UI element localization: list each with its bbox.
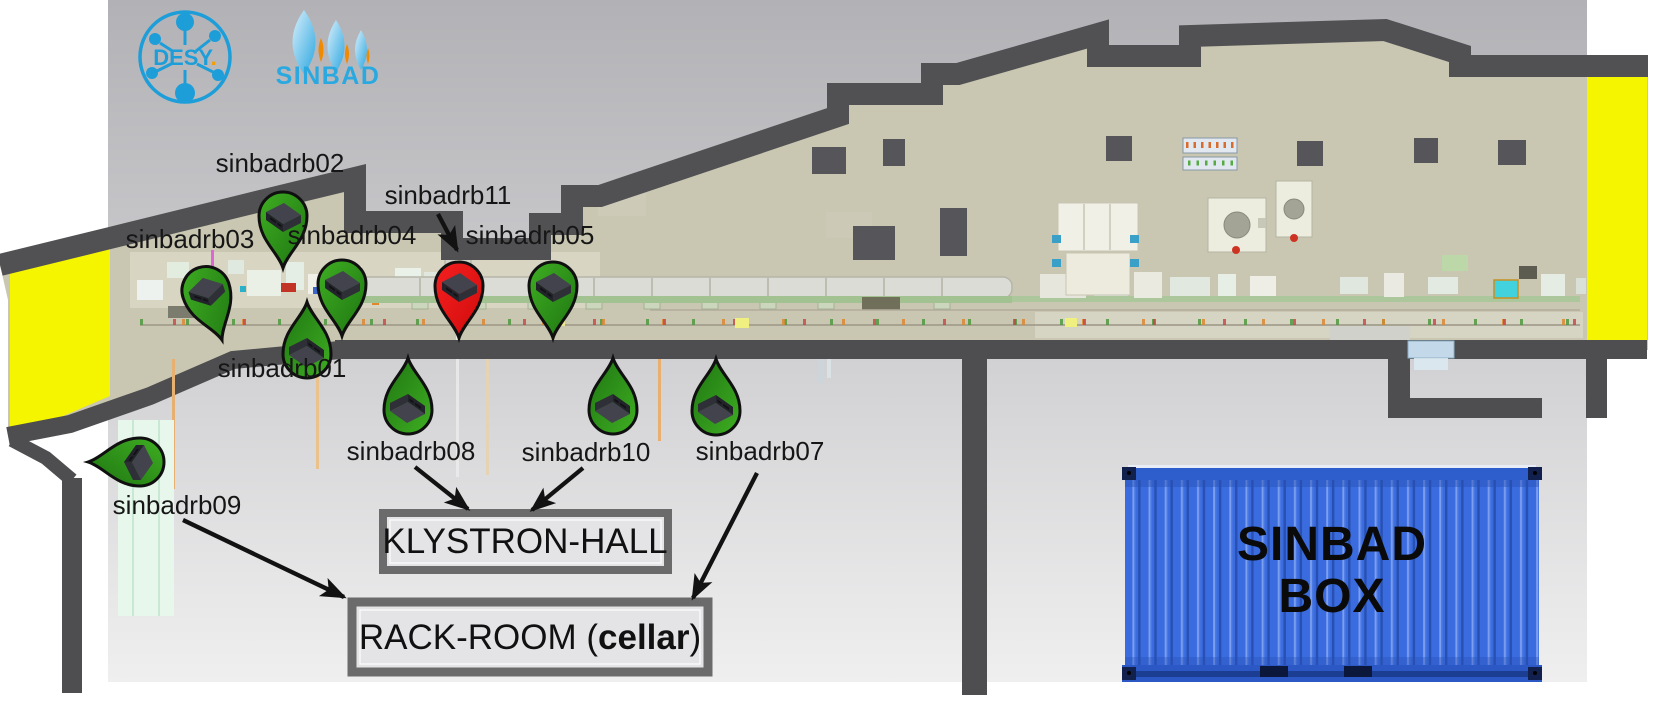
marker-label-sinbadrb04: sinbadrb04 — [288, 220, 417, 250]
marker-label-sinbadrb03: sinbadrb03 — [126, 224, 255, 254]
desy-logo-text: DESY — [153, 45, 213, 70]
rack-room-box: RACK-ROOM (cellar) — [352, 602, 708, 672]
marker-label-sinbadrb07: sinbadrb07 — [696, 436, 825, 466]
door — [1408, 341, 1454, 358]
klystron-hall-box: KLYSTRON-HALL — [382, 513, 668, 570]
sinbad-box-label-line2: BOX — [1278, 570, 1385, 623]
device-pin-sinbadrb09[interactable] — [88, 438, 164, 486]
marker-label-sinbadrb01: sinbadrb01 — [218, 353, 347, 383]
marker-label-sinbadrb08: sinbadrb08 — [347, 436, 476, 466]
marker-label-sinbadrb09: sinbadrb09 — [113, 490, 242, 520]
klystron-hall-label: KLYSTRON-HALL — [382, 522, 667, 561]
facility-map: KLYSTRON-HALL RACK-ROOM (cellar) SINBAD … — [0, 0, 1661, 723]
yellow-zone-right — [1587, 75, 1647, 340]
rack-room-label: RACK-ROOM (cellar) — [359, 618, 701, 657]
sinbad-box-container: SINBAD BOX — [1122, 465, 1542, 682]
sinbad-box-label-line1: SINBAD — [1237, 518, 1427, 571]
desy-logo: DESY. — [140, 12, 230, 103]
marker-label-sinbadrb10: sinbadrb10 — [522, 437, 651, 467]
marker-label-sinbadrb02: sinbadrb02 — [216, 148, 345, 178]
marker-label-sinbadrb11: sinbadrb11 — [385, 180, 512, 210]
marker-label-sinbadrb05: sinbadrb05 — [466, 220, 595, 250]
sinbad-logo-text: SINBAD — [276, 62, 381, 90]
svg-text:DESY.: DESY. — [153, 45, 217, 70]
